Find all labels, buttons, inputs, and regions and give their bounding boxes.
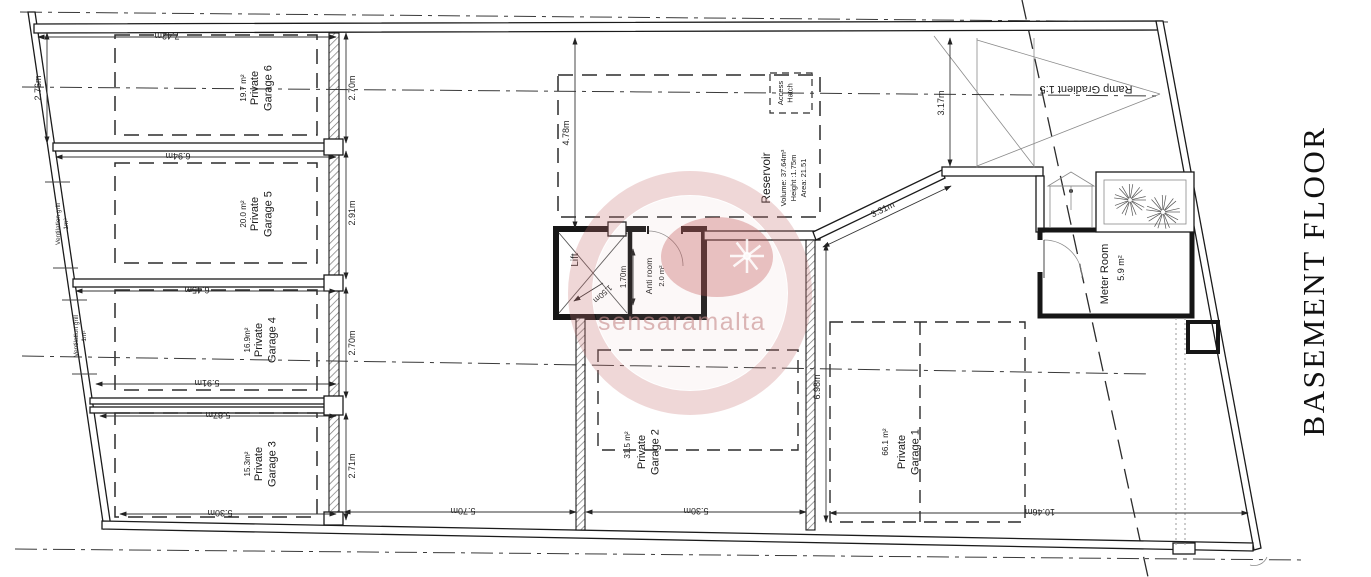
- garage2-area: 31.5 m²: [623, 431, 632, 458]
- garage4-outline: [115, 290, 317, 390]
- access-hatch-label: AccessHatch: [776, 81, 795, 105]
- ramp: [934, 36, 1185, 546]
- dim-garage5-length: 6.94m: [165, 151, 190, 161]
- garage6-label: PrivateGarage 6: [249, 65, 275, 111]
- garage1-area: 66.1 m²: [881, 428, 890, 455]
- dim-garage6-length: 7.42m: [154, 31, 179, 41]
- dim-garage3-length-top: 5.87m: [205, 410, 230, 420]
- page-title: BASEMENT FLOOR: [1296, 126, 1331, 437]
- garage5-outline: [115, 163, 317, 263]
- dim-garage3-length-bottom: 5.30m: [207, 508, 232, 518]
- reservoir-area: Area: 21.51: [799, 159, 808, 198]
- garage1-label: PrivateGarage 1: [896, 429, 922, 475]
- ramp-gradient-label: Ramp Gradient 1:5: [1040, 83, 1133, 95]
- dim-reservoir-depth: 4.78m: [561, 120, 571, 145]
- dim-garage4-length-bottom: 5.91m: [194, 378, 219, 388]
- garage4-label: PrivateGarage 4: [253, 317, 279, 363]
- garage2-label: PrivateGarage 2: [636, 429, 662, 475]
- planter: [1048, 172, 1194, 232]
- reservoir-height: Height :1.75m: [789, 155, 798, 202]
- garage6-outline: [115, 35, 317, 135]
- dim-garage6-width-right: 2.70m: [347, 75, 357, 100]
- dim-garage5-width: 2.91m: [347, 200, 357, 225]
- meter-room: [1035, 230, 1218, 352]
- dim-garage1-length: 10.46m: [1025, 507, 1055, 517]
- dim-garage2-depth: 6.98m: [812, 374, 822, 399]
- meter-room-label: Meter Room: [1099, 244, 1111, 305]
- dim-driveway-width: 5.70m: [450, 506, 475, 516]
- dim-garage4-length-top: 6.45m: [184, 285, 209, 295]
- dim-garage2-length: 5.30m: [683, 506, 708, 516]
- dim-garage4-width: 2.70m: [347, 330, 357, 355]
- garage3-outline: [115, 413, 317, 517]
- garage5-area: 20.0 m²: [239, 200, 248, 227]
- garage4-area: 16.9m²: [243, 327, 252, 352]
- garage6-area: 19.7 m²: [239, 74, 248, 101]
- watermark-text: sensaramalta: [598, 308, 766, 336]
- watermark: sensaramalta: [580, 183, 800, 403]
- basement-floor-plan: Ventilation grill1m² Ventilation grill1m…: [0, 0, 1371, 577]
- dim-ramp-width: 3.17m: [936, 90, 946, 115]
- meter-room-area: 5.9 m²: [1116, 255, 1126, 281]
- garage3-area: 15.3m²: [243, 451, 252, 476]
- garage5-label: PrivateGarage 5: [249, 191, 275, 237]
- garage1-outline: [830, 322, 1025, 522]
- dim-garage6-width-left: 2.76m: [33, 75, 43, 100]
- garage3-label: PrivateGarage 3: [253, 441, 279, 487]
- reservoir-volume: Volume: 37.64m³: [779, 149, 788, 206]
- dim-garage3-width: 2.71m: [347, 453, 357, 478]
